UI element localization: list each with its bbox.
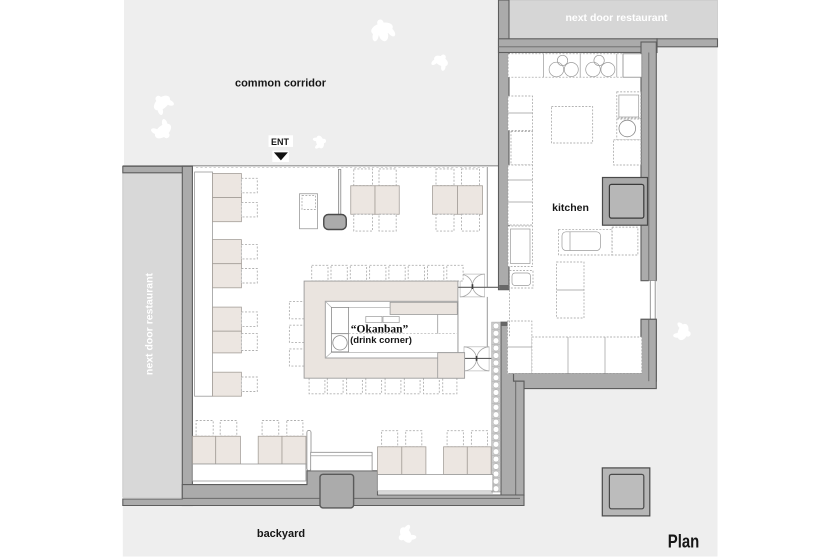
svg-text:(drink corner): (drink corner)	[350, 335, 412, 346]
svg-text:next door restaurant: next door restaurant	[144, 272, 156, 375]
svg-text:“Okanban”: “Okanban”	[351, 323, 409, 335]
svg-text:backyard: backyard	[257, 528, 305, 540]
svg-text:common corridor: common corridor	[235, 78, 327, 90]
svg-text:next door restaurant: next door restaurant	[565, 12, 668, 24]
svg-text:ENT: ENT	[271, 137, 290, 147]
svg-text:kitchen: kitchen	[552, 202, 589, 214]
svg-text:Plan: Plan	[668, 530, 700, 551]
